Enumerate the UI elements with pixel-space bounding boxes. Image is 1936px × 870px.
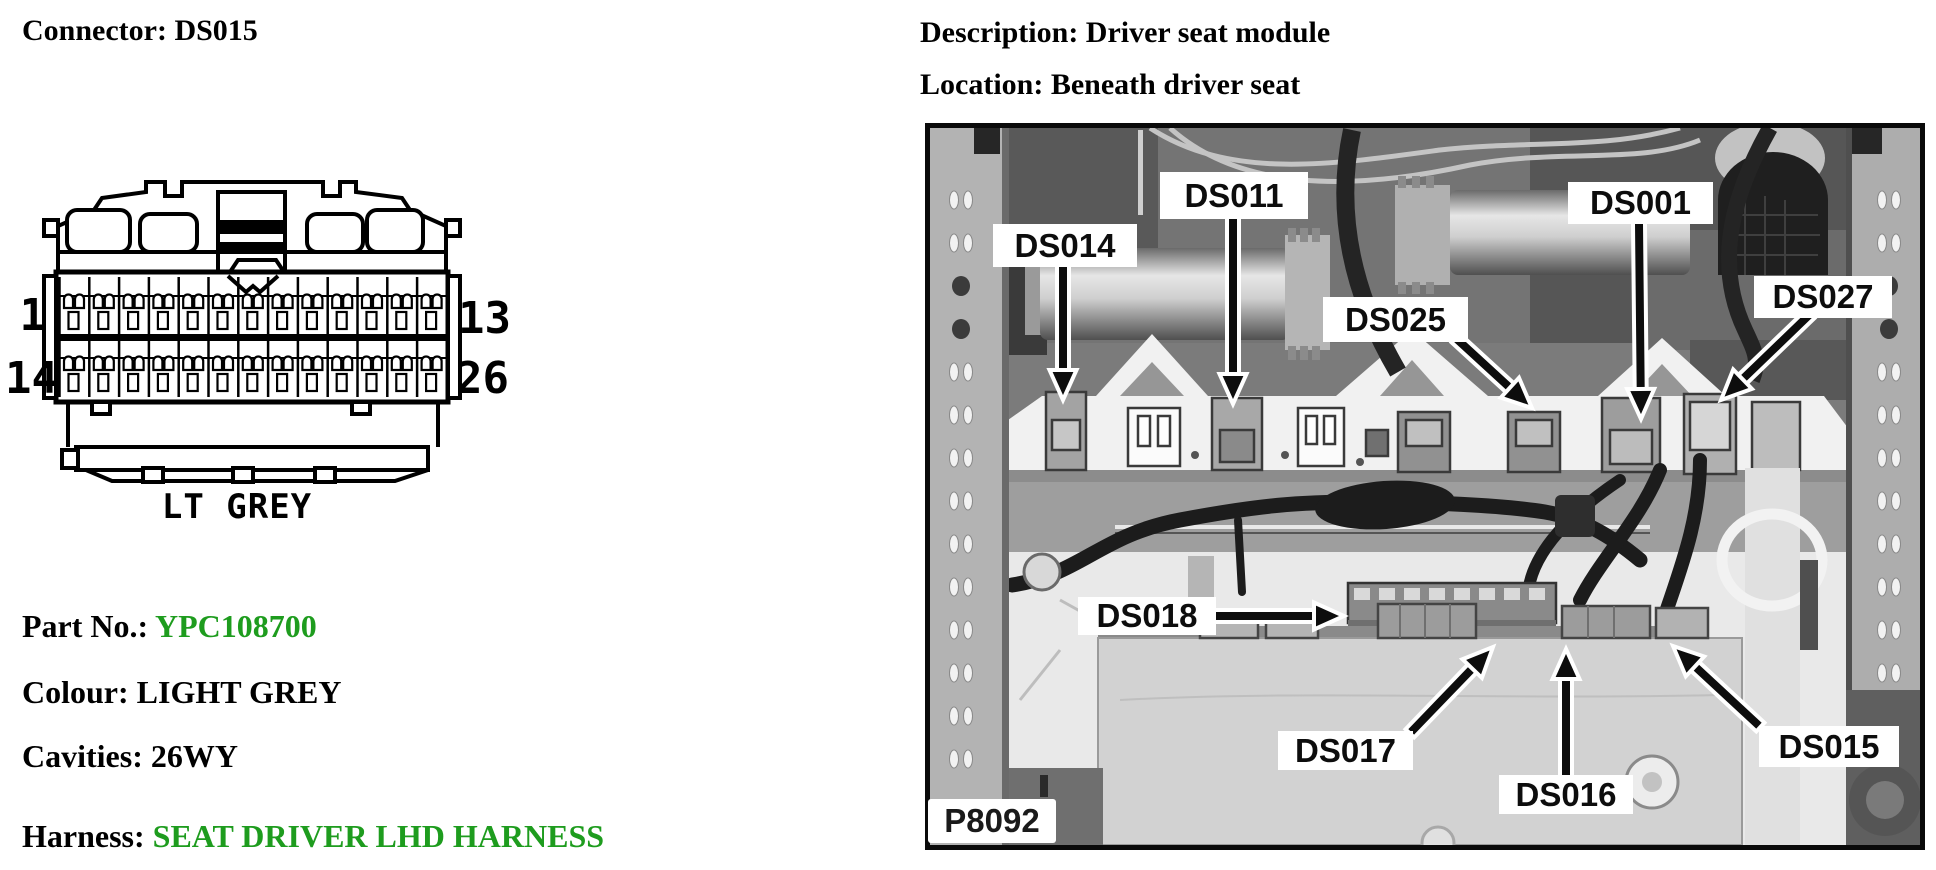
connector-title: Connector: DS015 [22, 14, 258, 48]
field-value: 26WY [151, 738, 238, 774]
field-label: Colour: [22, 674, 129, 710]
pin-label-14: 14 [5, 353, 58, 404]
field-value: SEAT DRIVER LHD HARNESS [153, 818, 604, 854]
callout-label-DS016: DS016 [1499, 775, 1633, 814]
field-label: Harness: [22, 818, 145, 854]
field-label: Cavities: [22, 738, 143, 774]
callout-label-DS027: DS027 [1754, 276, 1892, 318]
location-line: Location: Beneath driver seat [920, 68, 1300, 102]
callout-label-DS015: DS015 [1759, 726, 1899, 767]
callout-label-DS018: DS018 [1078, 597, 1216, 635]
figure-code-label: P8092 [928, 799, 1056, 843]
callout-label-DS017: DS017 [1278, 731, 1413, 770]
field-cavities: Cavities: 26WY [22, 738, 238, 775]
page: Connector: DS015 [0, 0, 1936, 870]
pin-label-26: 26 [456, 353, 509, 404]
connector-pinout-diagram: 1 14 13 26 LT GREY [0, 140, 520, 540]
callout-label-DS014: DS014 [993, 224, 1137, 267]
callout-label-DS011: DS011 [1160, 172, 1308, 219]
field-label: Part No.: [22, 608, 148, 644]
field-value: LIGHT GREY [137, 674, 342, 710]
field-part-no: Part No.: YPC108700 [22, 608, 317, 645]
callout-label-DS001: DS001 [1568, 182, 1713, 224]
description-line: Description: Driver seat module [920, 16, 1330, 50]
callout-label-DS025: DS025 [1323, 297, 1468, 342]
field-colour: Colour: LIGHT GREY [22, 674, 341, 711]
connector-color-label: LT GREY [162, 487, 312, 527]
pin-label-1: 1 [20, 290, 47, 341]
seat-photo-frame: DS014DS011DS001DS025DS027DS018DS017DS016… [925, 123, 1925, 850]
field-value: YPC108700 [155, 608, 317, 644]
field-harness: Harness: SEAT DRIVER LHD HARNESS [22, 818, 604, 855]
pin-label-13: 13 [458, 293, 511, 344]
